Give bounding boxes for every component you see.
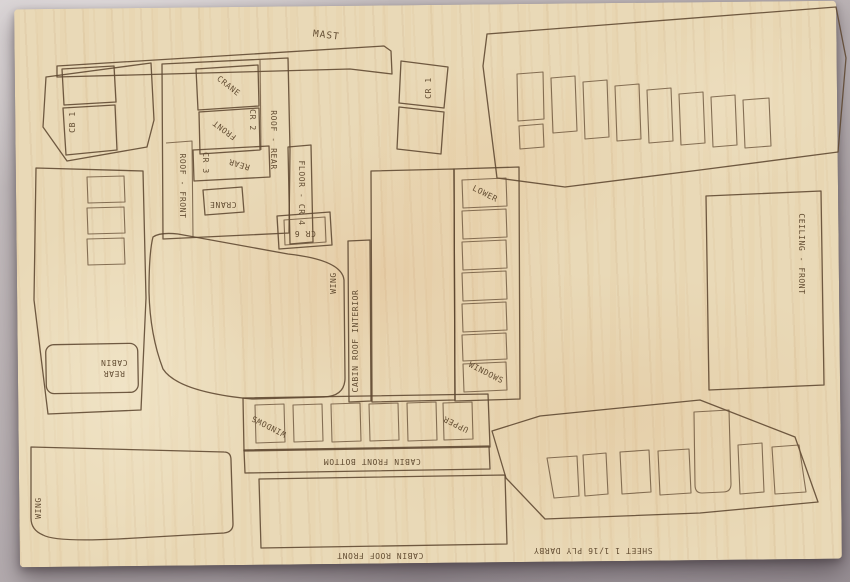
label-cr3: CR 3 (201, 152, 210, 174)
label-ceiling-front: CEILING - FRONT (797, 213, 806, 294)
part-left-side-outline (34, 168, 146, 414)
column-window-6 (462, 333, 507, 361)
part-cb1-outline (43, 63, 154, 161)
top-right-window-6 (679, 92, 705, 145)
column-window-5 (462, 302, 507, 332)
label-roof-front: ROOF - FRONT (178, 154, 187, 219)
top-right-window-5 (647, 88, 673, 143)
top-right-window-7 (711, 95, 737, 147)
label-sheet-title: SHEET 1 1/16 PLY DARBY (533, 546, 652, 555)
part-window-column-outline (454, 167, 520, 401)
part-wing-bottom-left (31, 447, 233, 540)
column-window-3 (462, 240, 507, 270)
label-crane-floor: CRANE (209, 200, 236, 209)
label-upper: UPPER (442, 414, 470, 434)
left-side-window-1 (87, 176, 125, 203)
part-bottom-right-outline (492, 400, 818, 519)
label-cb1: CB 1 (68, 111, 77, 133)
left-side-window-3 (87, 238, 125, 265)
cutting-plan-overlay: MAST CB 1 CRANE FRONT CR 2 ROOF - REAR R… (0, 0, 850, 582)
label-cr1: CR 1 (424, 77, 433, 99)
row-window-4 (369, 403, 399, 441)
label-cabin-rear-line1: CABIN (100, 358, 127, 367)
label-cabin-roof-interior: CABIN ROOF INTERIOR (351, 290, 360, 393)
top-right-window-1b (519, 124, 544, 149)
top-right-window-4 (615, 84, 641, 141)
part-wing-center (149, 233, 345, 399)
br-window-6 (738, 443, 764, 494)
fabric-background: MAST CB 1 CRANE FRONT CR 2 ROOF - REAR R… (0, 0, 850, 582)
label-cr6: CR 6 (294, 229, 316, 238)
left-side-window-2 (87, 207, 125, 234)
label-wing-center: WING (329, 272, 338, 294)
column-window-2 (462, 209, 507, 239)
label-cr2: CR 2 (248, 109, 257, 131)
label-roof-rear: ROOF - REAR (269, 110, 278, 170)
label-windows-side: WINDOWS (467, 360, 505, 385)
label-crane-roof: CRANE (215, 74, 242, 98)
row-window-3 (331, 403, 361, 442)
top-right-window-3 (583, 80, 609, 139)
row-window-2 (293, 404, 323, 442)
part-top-right-outline (483, 7, 846, 187)
label-wing-bottom: WING (34, 497, 43, 519)
label-cabin-rear-line2: REAR (103, 369, 125, 378)
top-right-window-2 (551, 76, 577, 133)
part-cabin-roof-front (259, 475, 507, 548)
part-cabin-rear (46, 343, 139, 394)
label-rear: REAR (228, 157, 251, 172)
br-window-2 (583, 453, 608, 496)
label-mast: MAST (312, 28, 340, 42)
br-window-1 (547, 456, 579, 498)
column-window-4 (462, 271, 507, 301)
label-front: FRONT (211, 118, 238, 141)
part-mid-rect (371, 169, 455, 402)
part-cr1-bottom (397, 107, 444, 154)
br-window-4 (658, 449, 691, 495)
top-right-window-1 (517, 72, 544, 121)
label-floor-cr4: FLOOR - CR 4 (297, 161, 306, 226)
br-window-3 (620, 450, 651, 494)
label-lower: LOWER (471, 184, 499, 204)
top-right-window-8 (743, 98, 771, 148)
label-cabin-roof-front: CABIN ROOF FRONT (337, 551, 424, 560)
row-window-5 (407, 402, 437, 441)
br-window-5 (694, 410, 731, 493)
label-cabin-front-bottom: CABIN FRONT BOTTOM (323, 457, 421, 466)
